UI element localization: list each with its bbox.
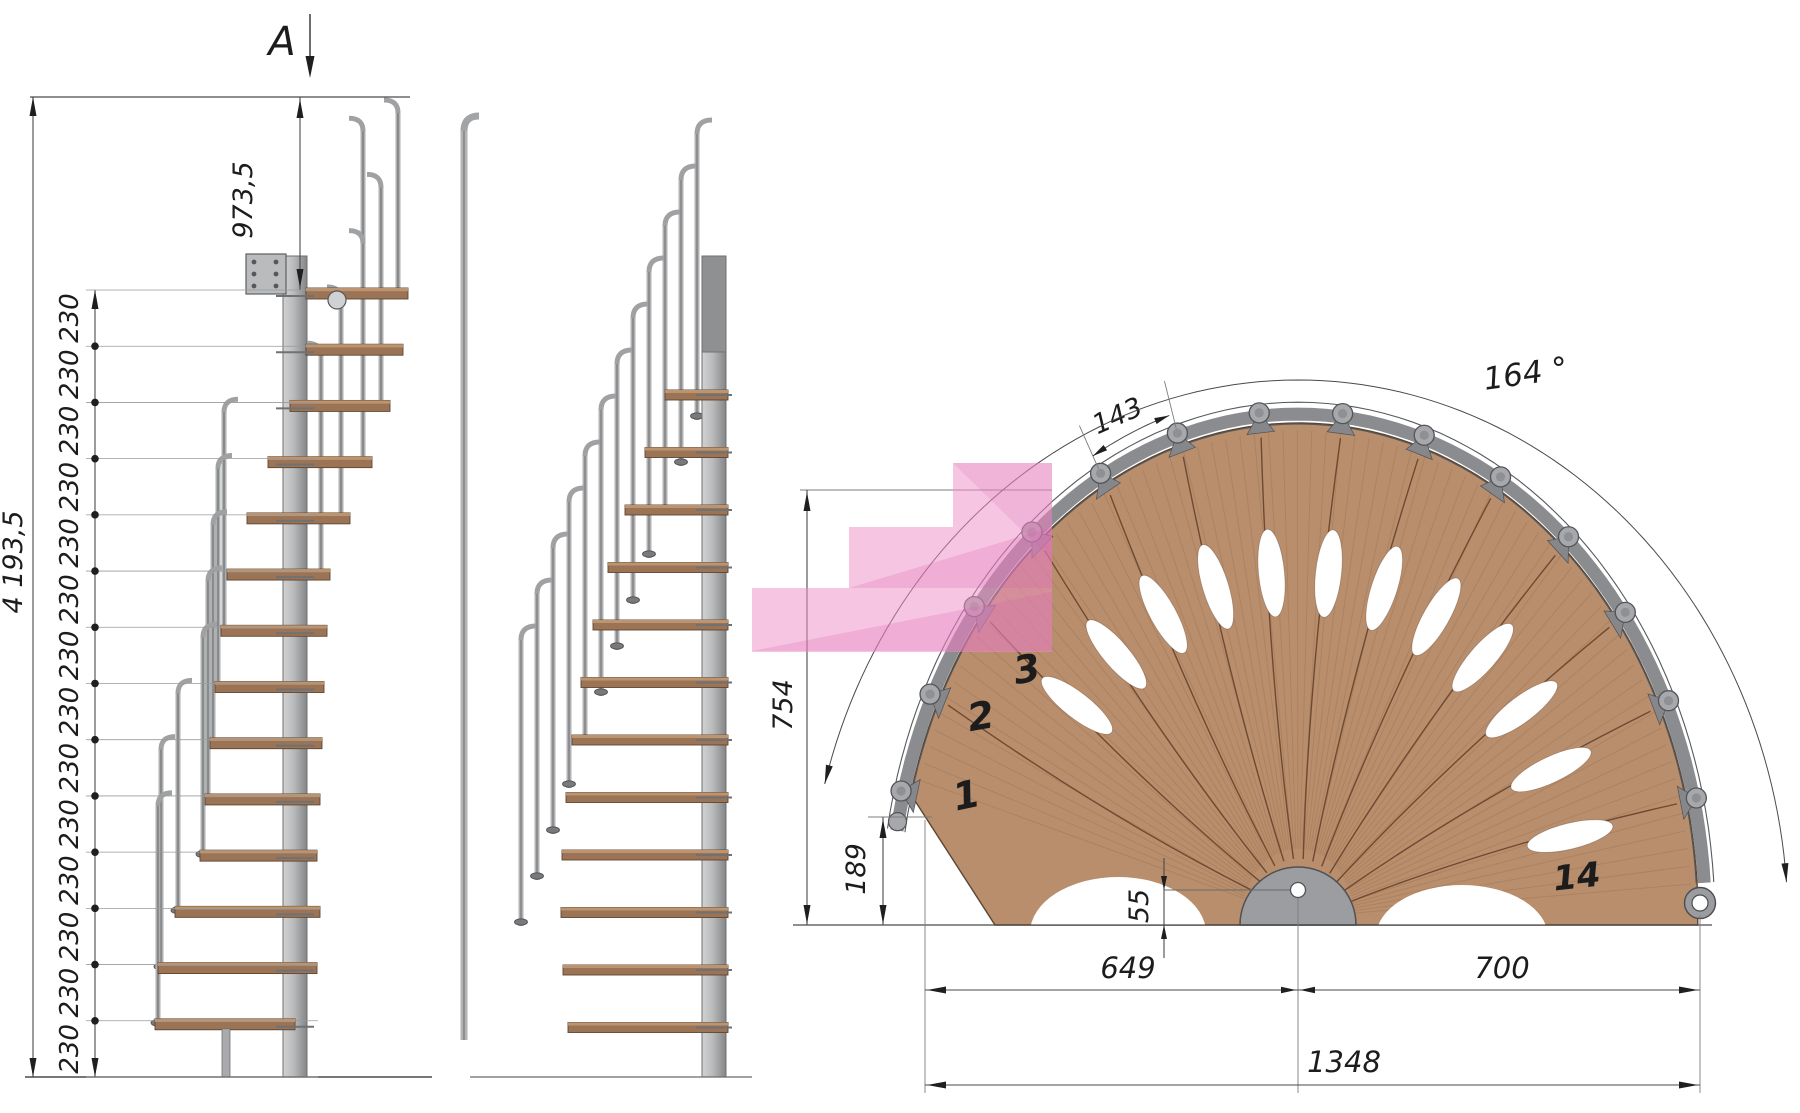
rise-dimension-label: 230 <box>55 518 85 568</box>
wood-tread-edge-top <box>625 505 728 508</box>
rise-dimension-label: 230 <box>55 968 85 1018</box>
handrail-cane-hook <box>601 396 616 410</box>
baluster-hook <box>349 118 363 131</box>
tread-arc-dimension: 143 <box>1088 392 1148 441</box>
cane-clamp <box>643 551 656 557</box>
dimension-dot <box>91 623 99 631</box>
rise-dimension-label: 230 <box>55 574 85 624</box>
rise-dimension-label: 230 <box>55 799 85 849</box>
baluster-hook <box>384 100 398 113</box>
wood-tread-edge-top <box>562 850 728 853</box>
dimension-dot <box>91 792 99 800</box>
dimension-arrowhead <box>927 987 946 994</box>
dimension-dot <box>91 455 99 463</box>
wood-tread-edge-top <box>608 563 728 566</box>
end-post-hole <box>1692 895 1708 911</box>
baluster-knob-center <box>1420 431 1429 440</box>
section-marker-label: A <box>265 19 295 65</box>
wood-tread-edge-top <box>581 678 728 681</box>
dimension-arrowhead <box>927 1082 946 1089</box>
handrail-cane-hook <box>697 120 712 134</box>
cane-clamp <box>627 597 640 603</box>
wood-tread-edge-top <box>572 735 728 738</box>
handrail-cane-hook <box>617 350 632 364</box>
handrail-cane-hook <box>521 626 536 640</box>
wood-grain-line <box>1297 430 1298 848</box>
baluster-knob-center <box>1173 428 1182 437</box>
rise-dimension-label: 230 <box>55 631 85 681</box>
center-hole-offset-dimension: 55 <box>1124 889 1155 923</box>
pink-highlight-overlay <box>752 463 1052 652</box>
front-post-hook <box>464 116 479 131</box>
plan-depth-dimension: 754 <box>768 679 799 731</box>
handrail-cane-hook <box>585 442 600 456</box>
dimension-arrowhead <box>1154 415 1169 424</box>
baluster-hook <box>158 793 172 806</box>
cane-clamp <box>515 919 528 925</box>
rise-dimension-label: 230 <box>55 912 85 962</box>
front-elevation-view <box>464 116 752 1077</box>
dimension-dot <box>91 342 99 350</box>
cane-clamp <box>595 689 608 695</box>
spiral-staircase-drawing: A 4 193,5 973,5 164 ° 143 754 189 55 649… <box>0 0 1800 1113</box>
dimension-arrowhead <box>1281 987 1296 993</box>
dimension-arrowhead <box>92 290 99 309</box>
dimension-arrowhead <box>804 905 811 924</box>
dimension-dot <box>91 1017 99 1025</box>
dimension-arrowhead <box>1781 863 1788 882</box>
dimension-arrowhead <box>30 97 37 116</box>
technical-drawing-canvas: A 4 193,5 973,5 164 ° 143 754 189 55 649… <box>0 0 1800 1113</box>
handrail-cane-hook <box>569 488 584 502</box>
cane-clamp <box>547 827 560 833</box>
center-column-hole <box>1291 883 1306 898</box>
wood-tread-edge-top <box>645 448 728 451</box>
rise-dimension-label: 230 <box>55 462 85 512</box>
wood-tread-top <box>306 288 408 291</box>
dimension-arrowhead <box>306 56 315 78</box>
step-number-14: 14 <box>1551 855 1602 900</box>
rise-dimension-label: 230 <box>55 293 85 343</box>
plate-bolt-hole <box>252 284 257 289</box>
dimension-arrowhead <box>825 765 833 784</box>
dimension-arrowhead <box>92 1058 99 1077</box>
wood-tread-top <box>306 344 403 347</box>
rim-end-knob <box>888 813 906 831</box>
dimension-arrowhead <box>1161 925 1167 939</box>
wood-tread-edge-top <box>563 965 728 968</box>
tread-fixing-detail <box>328 291 346 309</box>
cane-clamp <box>675 459 688 465</box>
handrail-cane-hook <box>633 304 648 318</box>
plate-bolt-hole <box>252 272 257 277</box>
dimension-arrowhead <box>30 1058 37 1077</box>
overall-width-dimension: 1348 <box>1307 1045 1381 1079</box>
plate-bolt-hole <box>274 272 279 277</box>
right-run-dimension: 700 <box>1474 951 1529 985</box>
rise-dimension-label: 230 <box>55 743 85 793</box>
dimension-arrowhead <box>880 819 887 838</box>
dimension-arrowhead <box>297 99 304 118</box>
cane-clamp <box>611 643 624 649</box>
baluster-knob-center <box>1564 532 1573 541</box>
rise-dimension-label: 230 <box>55 855 85 905</box>
center-pole <box>702 256 726 1077</box>
dimension-dot <box>91 848 99 856</box>
rise-dimension-label: 230 <box>55 687 85 737</box>
tread-arc-ext-line <box>1164 381 1176 428</box>
wood-tread-edge-top <box>566 793 728 796</box>
baluster-knob-center <box>925 690 934 699</box>
handrail-cane-hook <box>553 534 568 548</box>
rise-dimension-label: 230 <box>55 406 85 456</box>
baluster-knob-center <box>1692 793 1701 802</box>
baluster-knob-center <box>1338 409 1347 418</box>
dimension-dot <box>91 905 99 913</box>
handrail-cane-hook <box>649 258 664 272</box>
dimension-arrowhead <box>1679 1082 1698 1089</box>
side-elevation-view <box>25 100 432 1077</box>
baluster-hook <box>367 174 381 187</box>
top-flight-height-dimension: 973,5 <box>228 161 259 238</box>
baluster-knob-center <box>1664 696 1673 705</box>
handrail-cane-hook <box>665 212 680 226</box>
rise-dimension-label: 230 <box>55 1024 85 1074</box>
wood-tread-edge-top <box>568 1023 728 1026</box>
dimension-arrowhead <box>1300 987 1315 993</box>
dimension-dot <box>91 961 99 969</box>
baluster-knob-center <box>1255 408 1264 417</box>
dimension-arrowhead <box>1679 987 1698 994</box>
dimension-dot <box>91 511 99 519</box>
dimension-arrowhead <box>804 492 811 511</box>
dimension-arrowhead <box>880 905 887 924</box>
dimension-dot <box>91 399 99 407</box>
support-foot <box>222 1029 230 1077</box>
dimension-dot <box>91 680 99 688</box>
dimension-dot <box>91 567 99 575</box>
baluster-knob-center <box>1096 469 1105 478</box>
baluster-hook <box>178 680 192 693</box>
center-pole-top-segment <box>702 256 726 352</box>
baluster-knob-center <box>896 786 905 795</box>
baluster-knob-center <box>1496 472 1505 481</box>
total-height-dimension: 4 193,5 <box>0 510 29 613</box>
dimension-arrowhead <box>1093 445 1107 456</box>
dimension-dot <box>91 736 99 744</box>
baluster-hook <box>161 737 175 750</box>
handrail-cane-hook <box>537 580 552 594</box>
plan-angle-dimension: 164 ° <box>1481 350 1570 397</box>
plate-bolt-hole <box>252 260 257 265</box>
center-pole <box>283 256 307 1077</box>
rise-dimension-label: 230 <box>55 350 85 400</box>
wood-tread-edge-top <box>593 620 728 623</box>
first-step-offset-dimension: 189 <box>841 843 872 895</box>
left-run-dimension: 649 <box>1100 951 1155 985</box>
baluster-knob-center <box>1621 608 1630 617</box>
wood-tread-edge-top <box>665 390 728 393</box>
wood-tread-edge-top <box>561 908 728 911</box>
cane-clamp <box>563 781 576 787</box>
baluster-hook <box>349 231 363 244</box>
baluster-hook <box>224 399 238 412</box>
handrail-cane-hook <box>681 166 696 180</box>
plate-bolt-hole <box>274 284 279 289</box>
cane-clamp <box>531 873 544 879</box>
plate-bolt-hole <box>274 260 279 265</box>
